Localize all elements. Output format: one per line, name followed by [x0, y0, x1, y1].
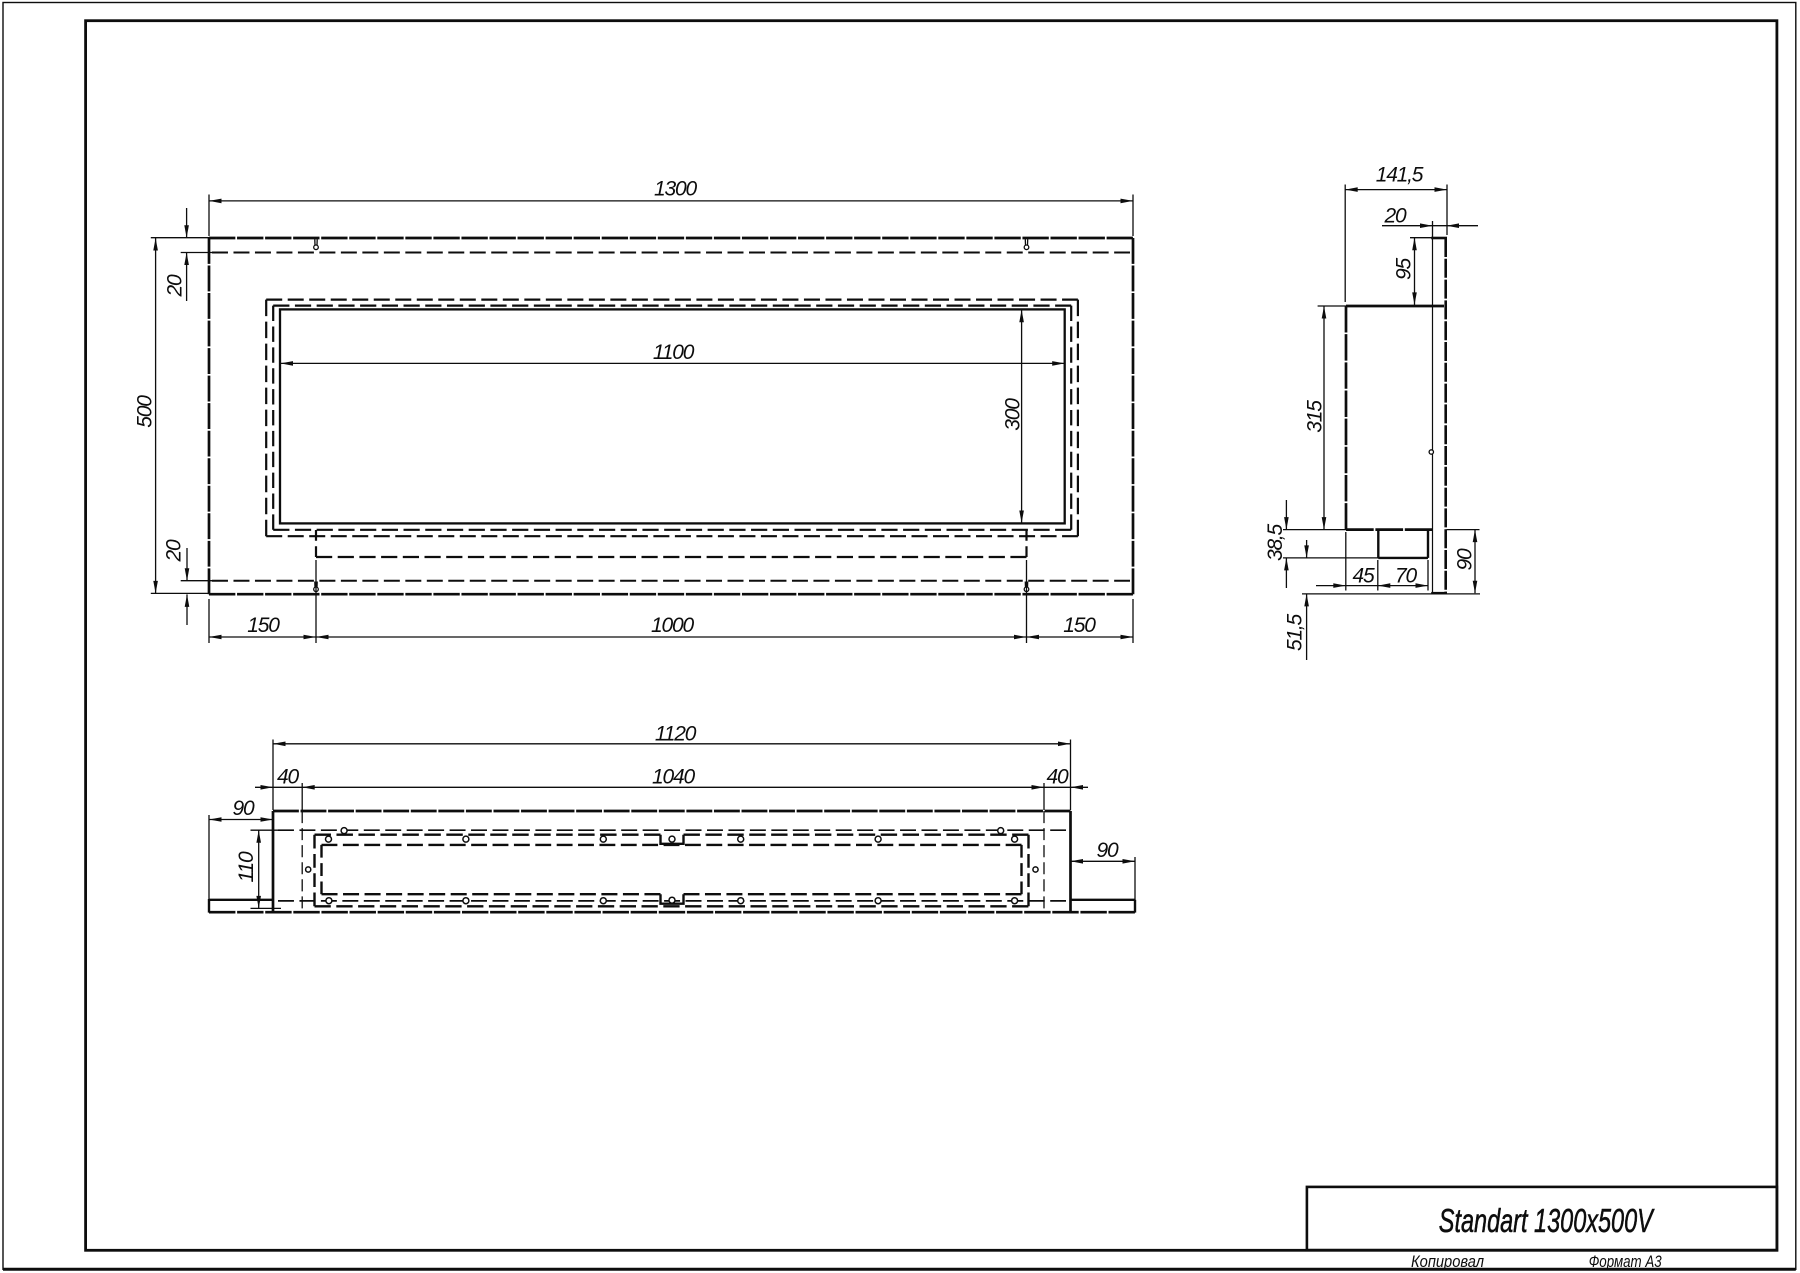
- svg-text:90: 90: [233, 797, 255, 820]
- svg-text:40: 40: [1047, 765, 1069, 788]
- svg-text:150: 150: [1063, 614, 1096, 637]
- svg-text:110: 110: [235, 851, 258, 882]
- svg-text:1040: 1040: [652, 765, 695, 788]
- svg-text:500: 500: [133, 395, 156, 428]
- svg-text:1300: 1300: [654, 178, 697, 201]
- svg-text:90: 90: [1097, 839, 1119, 862]
- svg-text:141,5: 141,5: [1376, 163, 1424, 186]
- svg-text:20: 20: [1384, 204, 1407, 227]
- svg-text:40: 40: [277, 765, 299, 788]
- svg-text:Копировал: Копировал: [1411, 1253, 1484, 1271]
- svg-text:20: 20: [163, 539, 186, 562]
- svg-text:51,5: 51,5: [1284, 613, 1307, 651]
- svg-text:1120: 1120: [655, 722, 697, 745]
- svg-text:45: 45: [1353, 564, 1375, 587]
- svg-text:90: 90: [1454, 548, 1477, 570]
- svg-text:Формат А3: Формат А3: [1589, 1253, 1663, 1271]
- svg-text:Standart 1300x500V: Standart 1300x500V: [1439, 1202, 1655, 1239]
- svg-text:150: 150: [247, 614, 280, 637]
- svg-text:95: 95: [1393, 258, 1416, 280]
- svg-text:1100: 1100: [653, 341, 695, 364]
- svg-text:70: 70: [1395, 564, 1417, 587]
- svg-text:20: 20: [163, 274, 186, 297]
- svg-text:315: 315: [1304, 400, 1327, 433]
- svg-text:1000: 1000: [651, 614, 694, 637]
- svg-text:38,5: 38,5: [1264, 523, 1287, 561]
- svg-text:300: 300: [1002, 398, 1025, 431]
